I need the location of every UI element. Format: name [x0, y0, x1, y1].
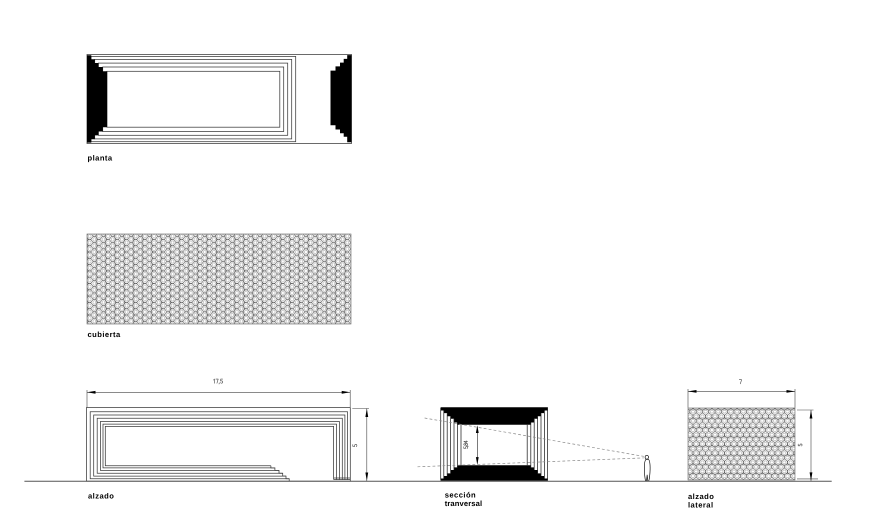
svg-text:lateral: lateral [688, 501, 714, 510]
svg-text:alzado: alzado [88, 491, 114, 500]
svg-text:tranversal: tranversal [445, 499, 483, 508]
svg-text:cubierta: cubierta [88, 330, 121, 339]
svg-text:alzado: alzado [688, 492, 714, 501]
svg-text:planta: planta [88, 154, 113, 163]
